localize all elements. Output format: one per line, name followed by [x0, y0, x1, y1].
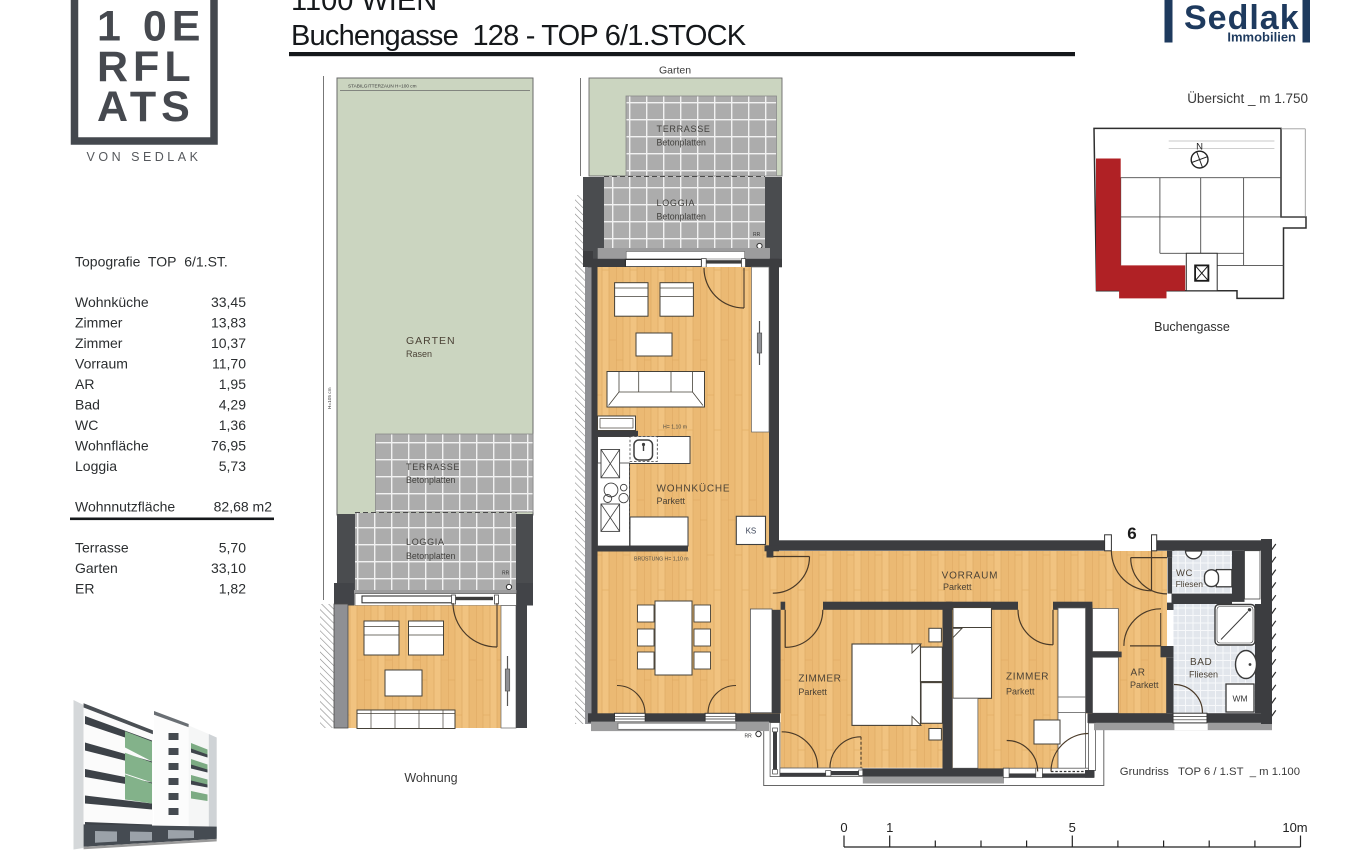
svg-text:STABILGITTERZAUN H=100 cm: STABILGITTERZAUN H=100 cm [348, 84, 417, 89]
svg-text:0: 0 [840, 820, 847, 835]
svg-text:10,37: 10,37 [211, 335, 246, 351]
svg-text:33,10: 33,10 [211, 560, 246, 576]
svg-text:TERRASSE: TERRASSE [406, 462, 460, 472]
svg-text:Parkett: Parkett [1006, 687, 1035, 697]
svg-text:Wohnnutzfläche: Wohnnutzfläche [75, 499, 175, 515]
svg-text:Topografie TOP 6/1.ST.: Topografie TOP 6/1.ST. [75, 254, 228, 270]
svg-text:LOGGIA: LOGGIA [657, 198, 696, 208]
svg-text:TERRASSE: TERRASSE [657, 124, 711, 134]
svg-text:H= 1,10 m: H= 1,10 m [663, 425, 687, 431]
svg-text:Betonplatten: Betonplatten [657, 212, 707, 222]
svg-text:ZIMMER: ZIMMER [798, 674, 841, 685]
svg-text:Betonplatten: Betonplatten [406, 475, 456, 485]
svg-text:WM: WM [1232, 694, 1247, 704]
svg-text:11,70: 11,70 [212, 356, 246, 372]
svg-text:13,83: 13,83 [211, 315, 246, 331]
svg-text:WOHNKÜCHE: WOHNKÜCHE [657, 483, 731, 495]
svg-text:1100 WIEN: 1100 WIEN [291, 0, 437, 17]
svg-text:Rasen: Rasen [406, 349, 432, 359]
svg-text:VORRAUM: VORRAUM [942, 571, 999, 582]
svg-text:Parkett: Parkett [1130, 680, 1159, 690]
svg-text:Garten: Garten [659, 65, 691, 77]
svg-text:LOGGIA: LOGGIA [406, 537, 445, 547]
svg-text:Buchengasse 128 - TOP 6/1.STO: Buchengasse 128 - TOP 6/1.STOCK [291, 20, 747, 52]
svg-text:Immobilien: Immobilien [1227, 30, 1296, 45]
svg-text:ZIMMER: ZIMMER [1006, 672, 1049, 683]
svg-text:VON SEDLAK: VON SEDLAK [87, 150, 202, 164]
svg-text:Zimmer: Zimmer [75, 335, 123, 351]
svg-text:Buchengasse: Buchengasse [1154, 320, 1230, 334]
svg-text:Wohnküche: Wohnküche [75, 294, 149, 310]
svg-text:Parkett: Parkett [798, 687, 827, 697]
svg-text:Fliesen: Fliesen [1189, 670, 1218, 680]
svg-text:Fliesen: Fliesen [1176, 579, 1204, 589]
svg-text:Terrasse: Terrasse [75, 540, 129, 556]
svg-text:AR: AR [75, 376, 94, 392]
svg-text:H=105 cm: H=105 cm [327, 387, 332, 409]
svg-text:WC: WC [1176, 568, 1193, 579]
svg-text:ER: ER [75, 581, 94, 597]
svg-text:Vorraum: Vorraum [75, 356, 128, 372]
svg-text:RR: RR [745, 734, 753, 740]
svg-text:Betonplatten: Betonplatten [657, 138, 707, 148]
svg-text:KS: KS [746, 527, 757, 536]
svg-text:Wohnfläche: Wohnfläche [75, 438, 149, 454]
svg-text:5,70: 5,70 [219, 540, 246, 556]
svg-text:76,95: 76,95 [211, 438, 246, 454]
svg-text:Wohnung: Wohnung [404, 771, 457, 785]
svg-text:GARTEN: GARTEN [406, 335, 456, 347]
svg-text:4,29: 4,29 [219, 397, 246, 413]
svg-text:6: 6 [1127, 524, 1136, 543]
svg-text:1,82: 1,82 [219, 581, 246, 597]
svg-text:5,73: 5,73 [219, 458, 246, 474]
svg-text:Garten: Garten [75, 560, 118, 576]
svg-text:RR: RR [753, 232, 761, 238]
svg-text:AR: AR [1131, 668, 1146, 679]
svg-text:1,95: 1,95 [219, 376, 246, 392]
svg-text:5: 5 [1069, 820, 1076, 835]
svg-text:33,45: 33,45 [211, 294, 246, 310]
svg-text:Zimmer: Zimmer [75, 315, 123, 331]
svg-text:Übersicht _ m 1.750: Übersicht _ m 1.750 [1187, 91, 1308, 106]
svg-text:Betonplatten: Betonplatten [406, 551, 456, 561]
svg-text:82,68 m2: 82,68 m2 [214, 499, 273, 515]
svg-text:10m: 10m [1282, 820, 1307, 835]
svg-text:Loggia: Loggia [75, 458, 117, 474]
svg-text:Grundriss TOP 6 / 1.ST _ m: Grundriss TOP 6 / 1.ST _ m 1.100 [1120, 766, 1300, 778]
svg-text:BAD: BAD [1190, 657, 1212, 668]
svg-text:RR: RR [502, 571, 510, 577]
svg-text:Bad: Bad [75, 397, 100, 413]
svg-text:WC: WC [75, 417, 98, 433]
svg-text:BRÜSTUNG H= 1,10 m: BRÜSTUNG H= 1,10 m [634, 556, 689, 563]
svg-text:Parkett: Parkett [657, 496, 686, 506]
svg-text:ATS: ATS [97, 83, 195, 131]
svg-text:1,36: 1,36 [219, 417, 246, 433]
svg-text:1: 1 [886, 820, 893, 835]
svg-text:Parkett: Parkett [943, 582, 972, 592]
